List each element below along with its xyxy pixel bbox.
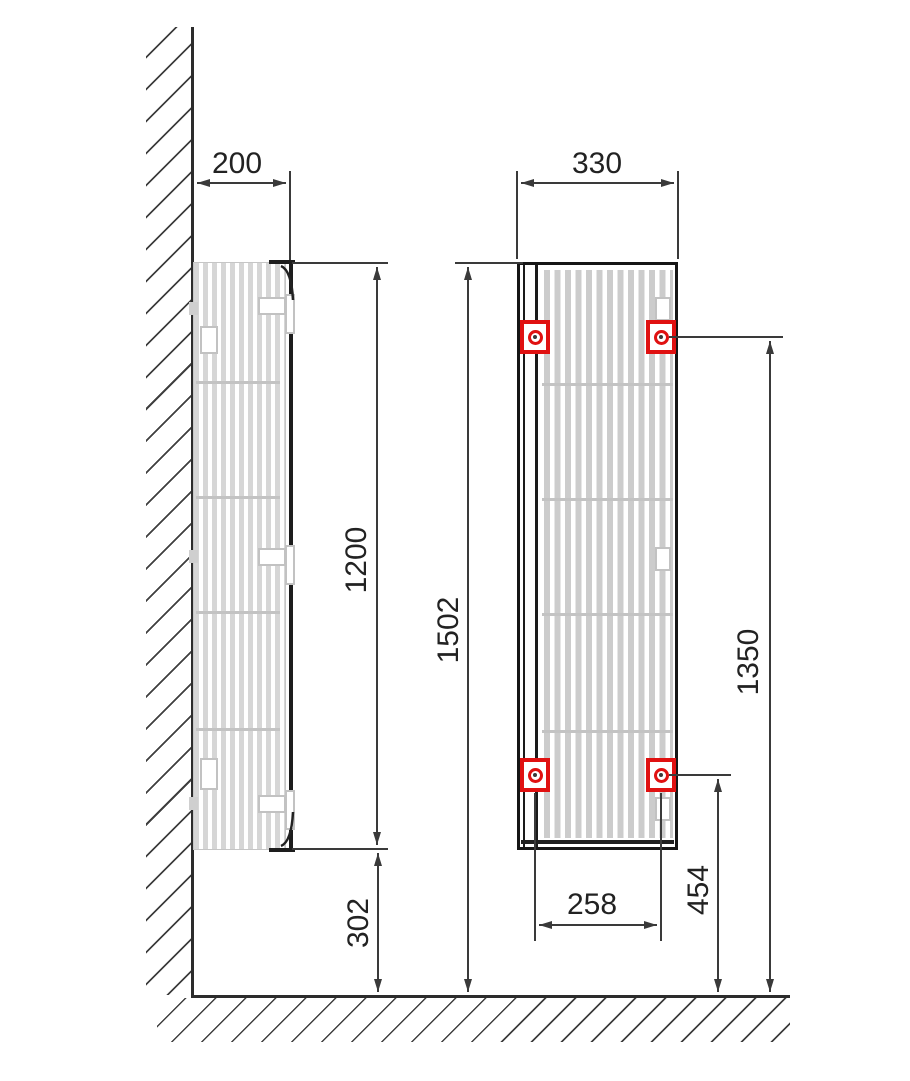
mounting-bracket-top-left [520,320,550,354]
shelf-line [196,496,280,499]
dim-height-label: 1200 [340,527,373,594]
hinge-plate [285,790,295,830]
dim-upper-mount: 1350 [669,337,783,992]
dim-lower-mount-label: 454 [682,865,715,915]
shelf-line [196,611,280,614]
dim-lower-mount: 454 [669,775,731,992]
floor-line [191,995,790,998]
bracket-hole-icon [528,330,543,345]
dim-width: 330 [517,147,678,259]
dim-height: 1200 [292,263,388,849]
bracket-hole-icon [654,768,669,783]
shelf-line [196,381,280,384]
hinge-plate [285,545,295,585]
mounting-bracket-top-right [646,320,676,354]
hinge-detail [655,797,671,821]
mounting-bracket-bottom-right [646,758,676,792]
mounting-bracket-bottom-left [520,758,550,792]
shelf-line [542,498,673,501]
hinge-detail [655,297,671,321]
fitting-detail [200,326,218,354]
bracket-hole-icon [528,768,543,783]
wall-hatch-pattern [146,27,191,995]
hinge-detail [258,795,286,813]
dim-total-height: 1502 [432,263,523,992]
dimension-layer: 200 330 1200 302 1502 [0,0,910,1081]
shelf-line [542,730,673,733]
hinge-plate [285,294,295,334]
dim-mount-spacing-label: 258 [567,888,617,921]
dim-depth-label: 200 [212,147,262,180]
hinge-detail [258,548,286,566]
wall-fitting [189,797,198,810]
dim-total-height-label: 1502 [432,597,465,664]
floor-hatch-pattern [157,998,790,1042]
dim-width-label: 330 [572,147,622,180]
shelf-line [542,383,673,386]
cabinet-side-view [193,262,295,850]
wall-fitting [189,302,198,315]
bracket-hole-icon [654,330,669,345]
wall-fitting [189,550,198,563]
shelf-line [542,613,673,616]
fitting-detail [200,758,218,790]
dim-floor-gap-label: 302 [342,898,375,948]
dim-upper-mount-label: 1350 [732,629,765,696]
front-slat-body [544,270,673,838]
shelf-line [196,728,280,731]
door-bottom-cap [269,848,295,852]
dim-depth: 200 [197,147,290,260]
hinge-detail [258,297,286,315]
dim-floor-gap: 302 [342,853,378,992]
hinge-detail [655,547,671,571]
technical-drawing-canvas: 200 330 1200 302 1502 [0,0,910,1081]
door-top-cap [269,260,295,264]
cabinet-bottom-band [521,840,674,844]
